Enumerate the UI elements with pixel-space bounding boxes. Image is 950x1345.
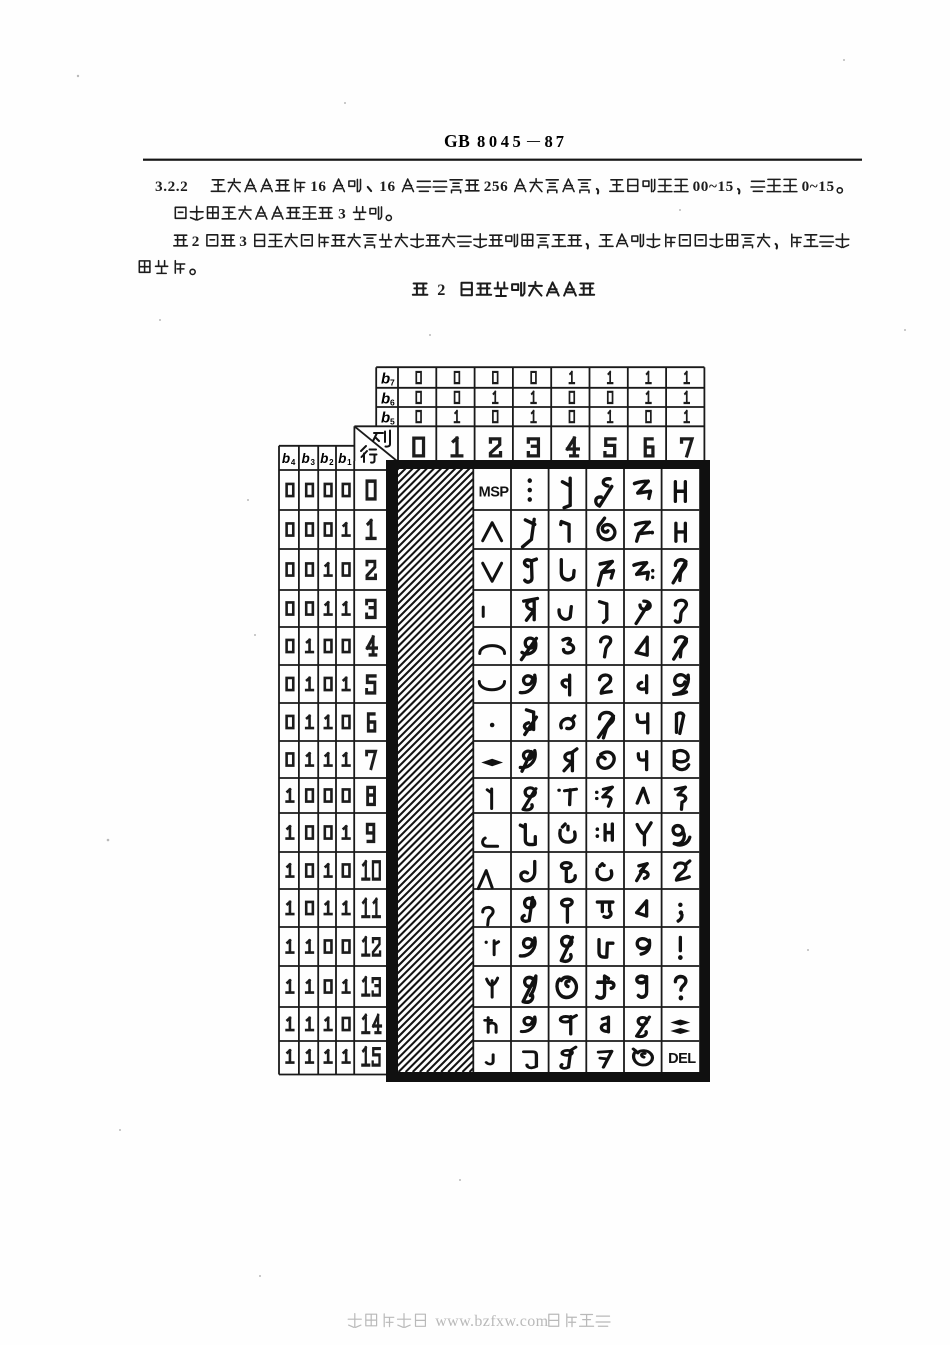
svg-text:7: 7 [390, 378, 395, 388]
svg-text:3: 3 [338, 206, 346, 223]
svg-text:DEL: DEL [668, 1051, 696, 1067]
svg-text:3.2.2: 3.2.2 [155, 178, 188, 195]
svg-text:5: 5 [390, 417, 395, 427]
svg-text:87: 87 [545, 132, 568, 151]
svg-text:4: 4 [291, 458, 296, 467]
svg-text:b: b [302, 451, 310, 466]
svg-text:2: 2 [437, 281, 446, 299]
svg-text:16: 16 [379, 178, 395, 195]
svg-text:00~15: 00~15 [693, 178, 734, 195]
svg-text:8045: 8045 [477, 132, 524, 151]
svg-text:b: b [338, 451, 346, 466]
svg-text:b: b [320, 451, 328, 466]
svg-text:b: b [381, 390, 390, 407]
svg-text:16: 16 [310, 178, 326, 195]
svg-text:256: 256 [484, 178, 509, 195]
svg-text:3: 3 [239, 233, 247, 250]
svg-text:2: 2 [192, 233, 200, 250]
svg-text:—: — [526, 133, 541, 148]
svg-text:3: 3 [311, 458, 316, 467]
svg-text:MSP: MSP [479, 485, 510, 501]
svg-text:2: 2 [329, 458, 334, 467]
svg-text:b: b [282, 451, 290, 466]
svg-text:www.bzfxw.com: www.bzfxw.com [435, 1313, 548, 1330]
svg-text:GB: GB [444, 131, 470, 151]
svg-text:1: 1 [347, 458, 352, 467]
svg-text:b: b [381, 371, 390, 388]
svg-text:b: b [381, 410, 390, 427]
svg-text:6: 6 [390, 397, 395, 407]
svg-text:0~15: 0~15 [802, 178, 835, 195]
